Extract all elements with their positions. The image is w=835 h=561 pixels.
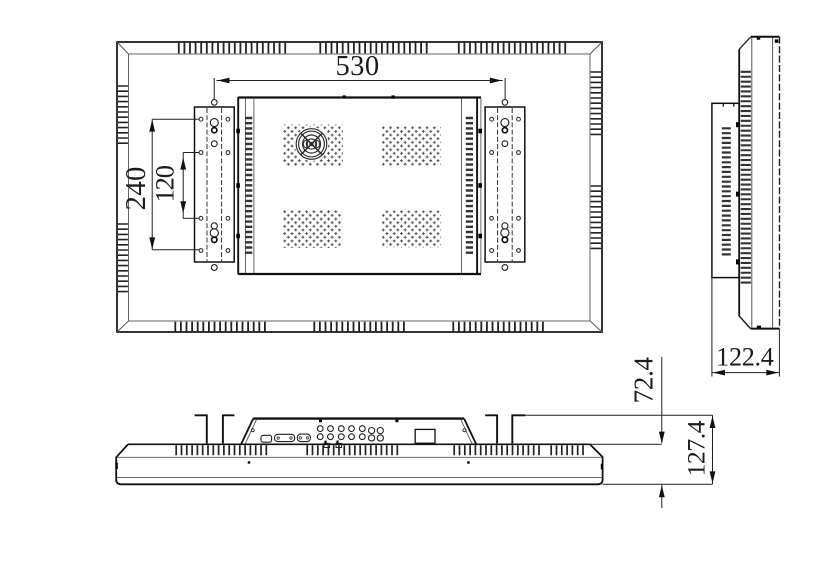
svg-text:72.4: 72.4	[629, 356, 659, 403]
svg-text:530: 530	[335, 51, 379, 82]
svg-text:127.4: 127.4	[682, 420, 711, 476]
svg-text:240: 240	[121, 166, 152, 210]
svg-text:122.4: 122.4	[716, 343, 774, 372]
svg-text:120: 120	[150, 165, 180, 202]
